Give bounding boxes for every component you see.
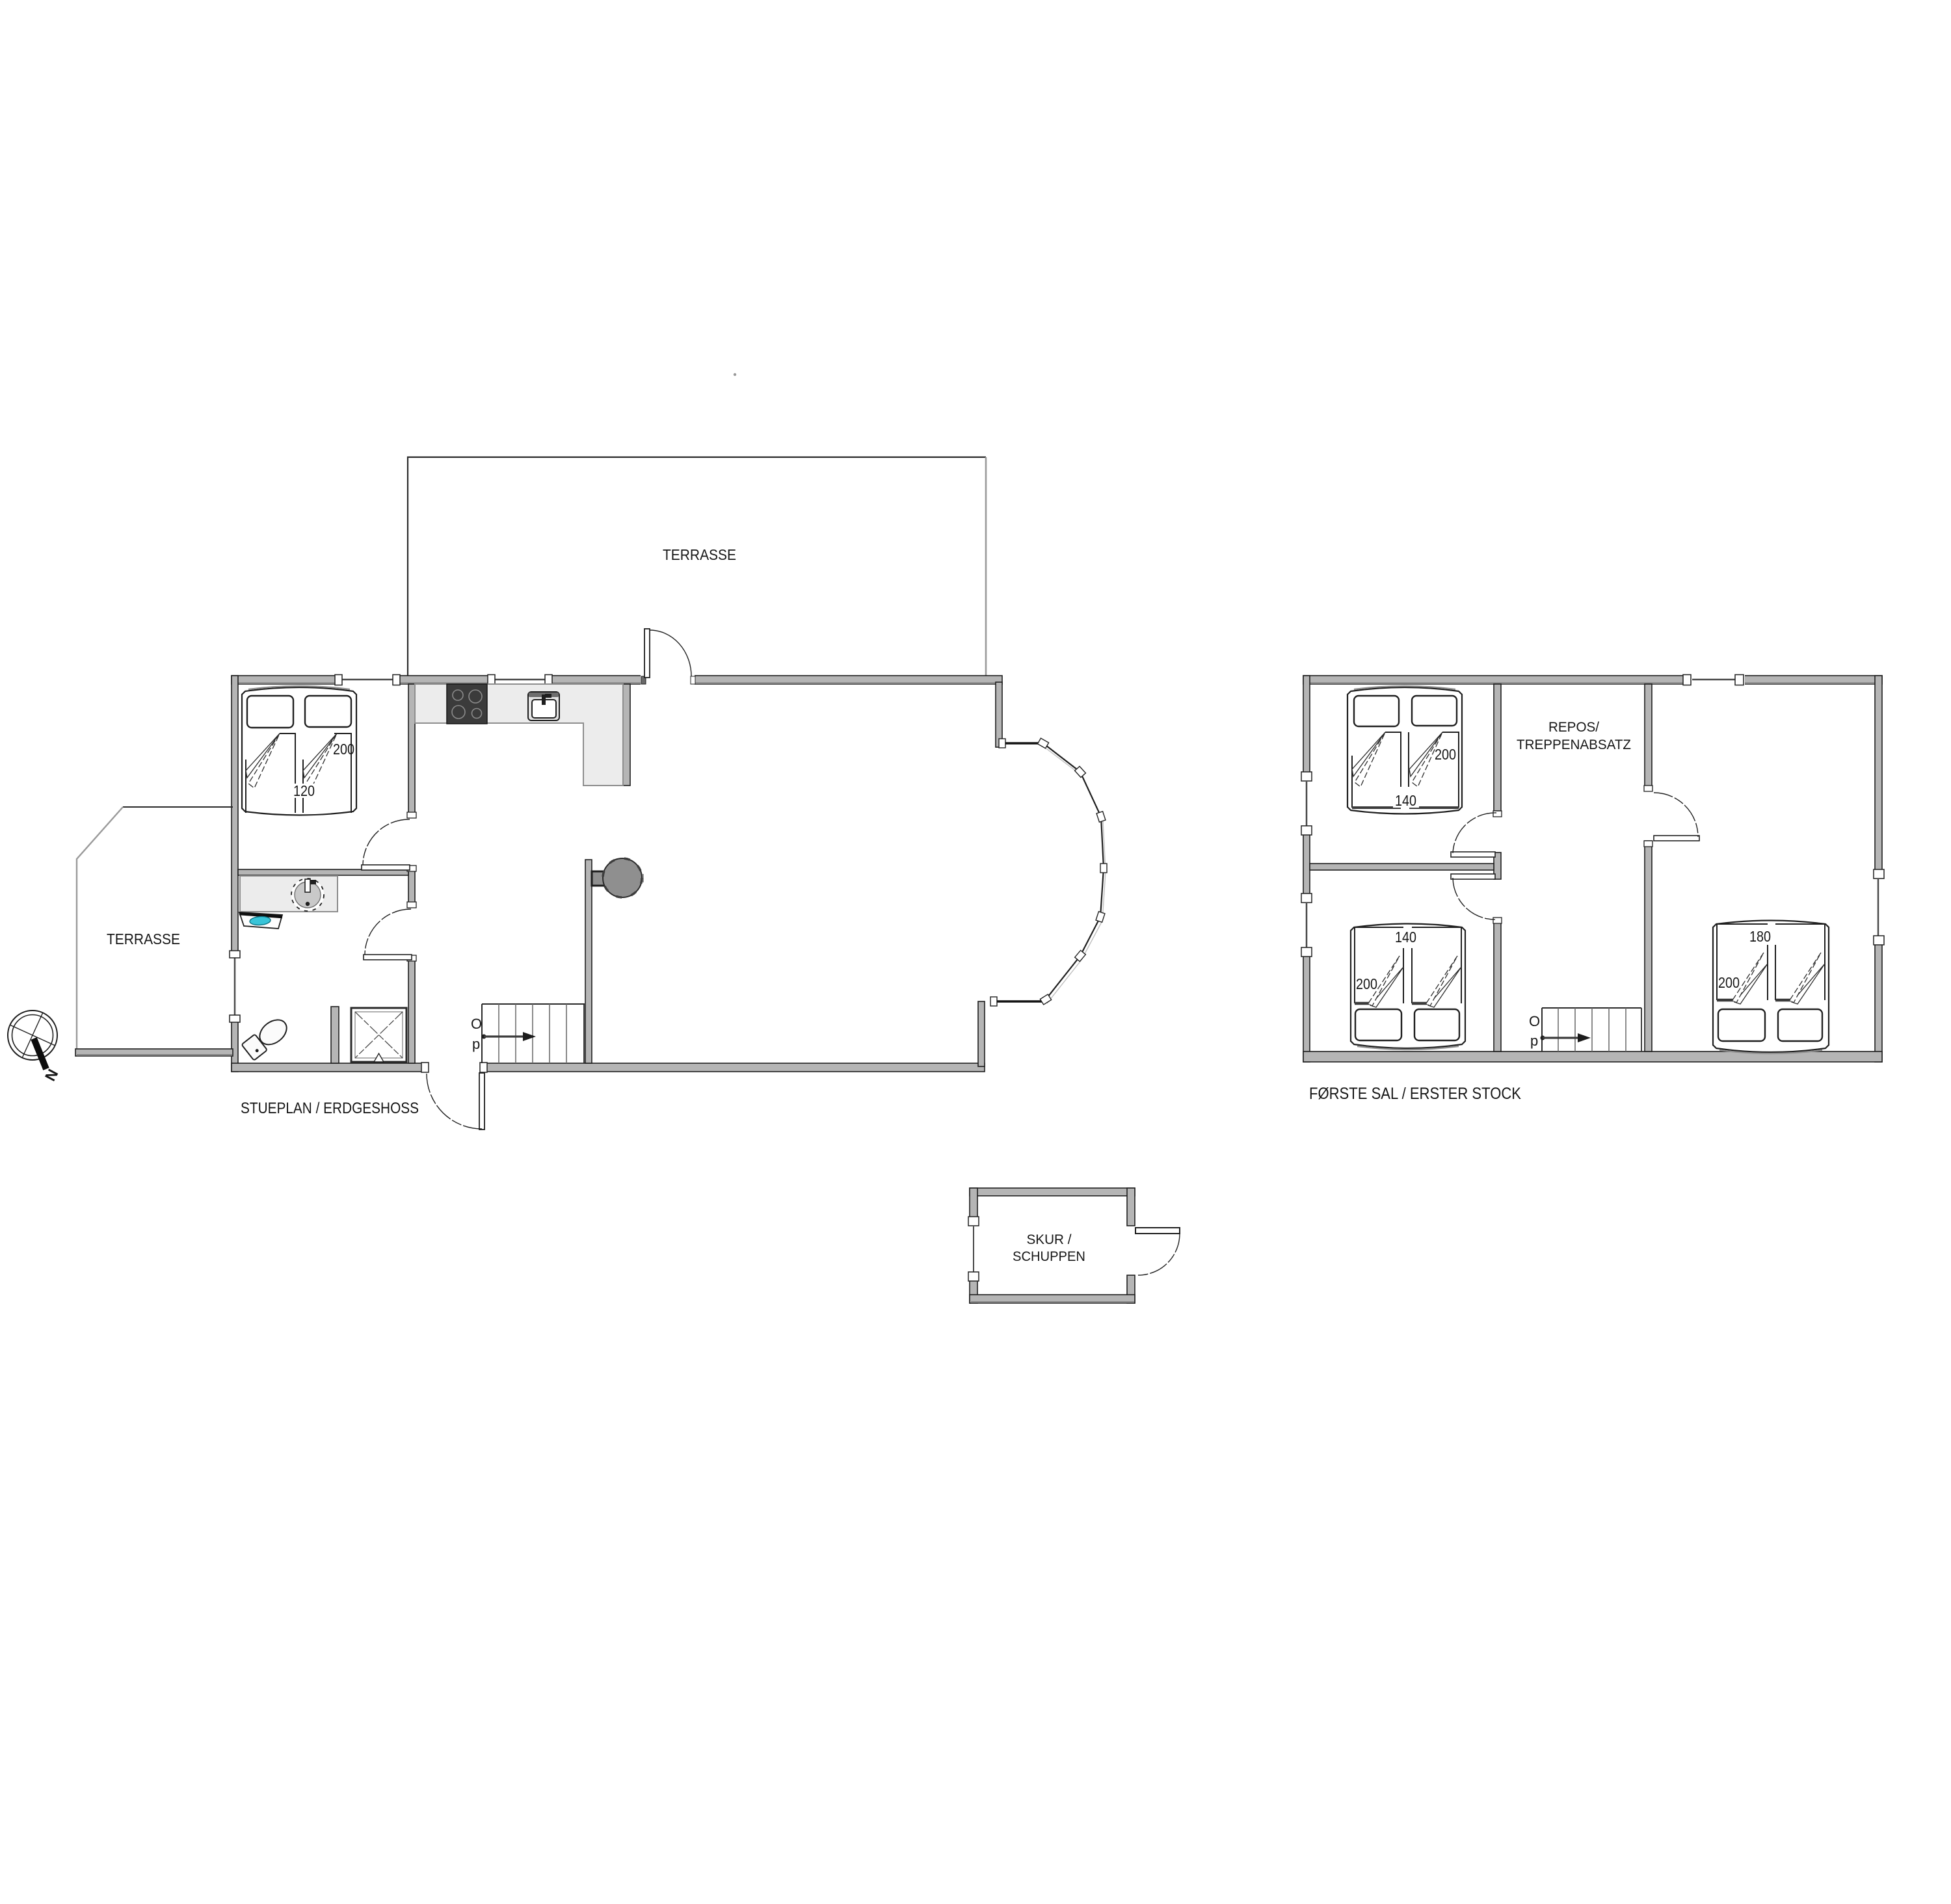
svg-text:200: 200 — [333, 741, 354, 758]
svg-text:TERRASSE: TERRASSE — [663, 546, 736, 563]
svg-text:O: O — [1529, 1013, 1540, 1029]
svg-text:p: p — [1530, 1033, 1538, 1049]
svg-text:TERRASSE: TERRASSE — [107, 931, 180, 947]
svg-text:p: p — [472, 1036, 480, 1052]
svg-text:SCHUPPEN: SCHUPPEN — [1013, 1249, 1085, 1264]
svg-text:180: 180 — [1749, 928, 1771, 945]
svg-text:120: 120 — [293, 782, 315, 799]
svg-text:200: 200 — [1356, 975, 1377, 992]
svg-text:O: O — [471, 1016, 482, 1032]
svg-text:200: 200 — [1718, 974, 1740, 991]
svg-text:FØRSTE SAL / ERSTER STOCK: FØRSTE SAL / ERSTER STOCK — [1309, 1085, 1521, 1103]
svg-text:140: 140 — [1395, 929, 1416, 945]
svg-text:STUEPLAN / ERDGESHOSS: STUEPLAN / ERDGESHOSS — [241, 1100, 419, 1117]
svg-text:140: 140 — [1395, 792, 1416, 809]
svg-text:TREPPENABSATZ: TREPPENABSATZ — [1517, 737, 1631, 752]
svg-text:SKUR /: SKUR / — [1027, 1232, 1072, 1247]
svg-text:REPOS/: REPOS/ — [1548, 720, 1599, 735]
svg-text:200: 200 — [1435, 746, 1456, 763]
